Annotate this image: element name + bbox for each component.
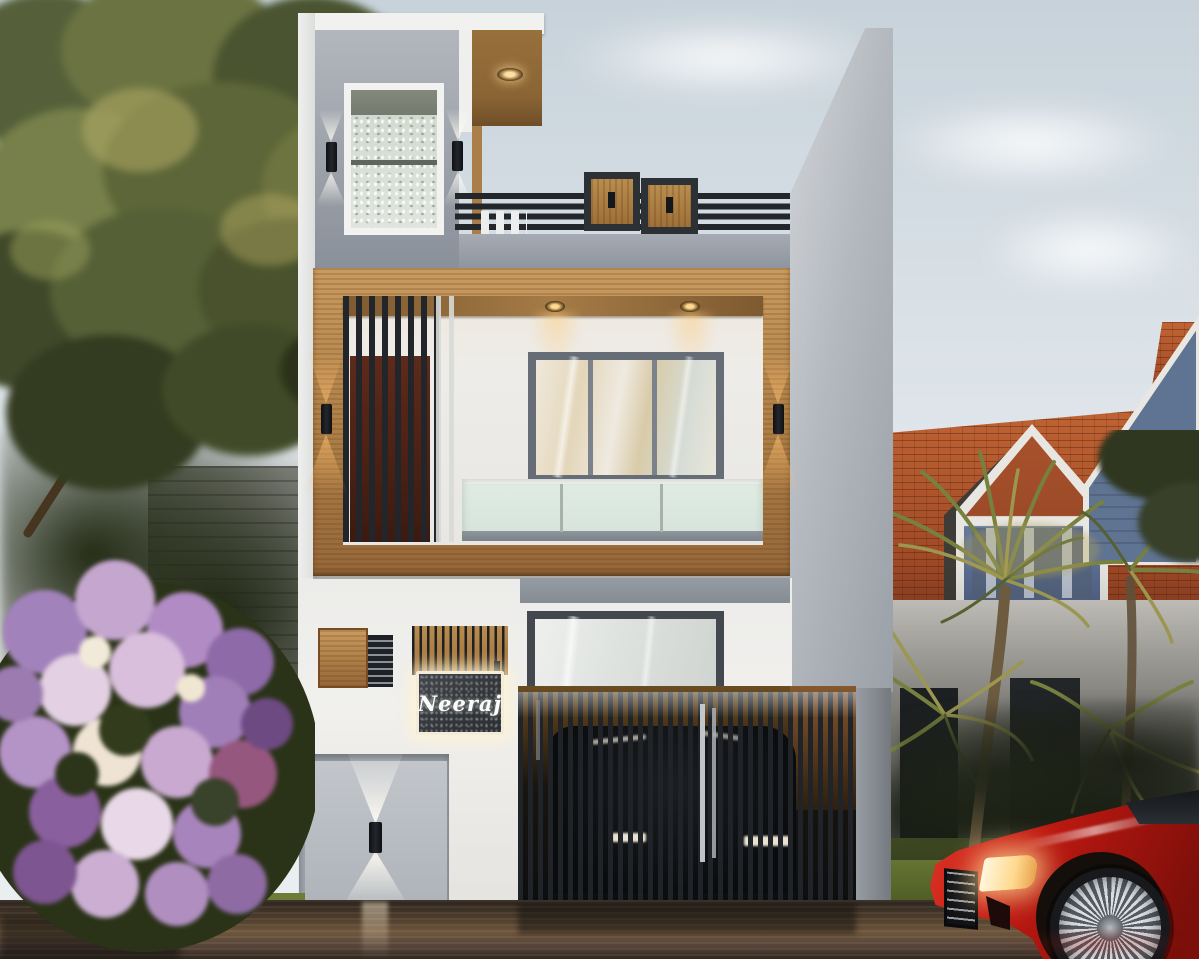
glass-divider	[560, 484, 563, 532]
recessed-downlight	[680, 301, 700, 312]
dark-foliage-top	[960, 430, 1199, 578]
cloud	[880, 100, 1180, 186]
louver-vent	[368, 635, 393, 687]
gate-road-reflection	[518, 904, 856, 934]
flower-bush	[0, 512, 315, 952]
window-mullion	[652, 360, 657, 475]
car-grille	[944, 868, 978, 930]
lamp-road-reflection	[362, 902, 388, 959]
rendered-scene: Neeraj	[0, 0, 1199, 959]
bright-gate-slat	[700, 704, 705, 862]
porch-slab-band	[520, 578, 790, 603]
driveway-gate	[518, 692, 856, 908]
cloud	[980, 210, 1199, 290]
bright-gate-slat	[536, 700, 540, 760]
recessed-downlight	[545, 301, 565, 312]
nameplate: Neeraj	[416, 671, 504, 735]
gate-top-highlight	[518, 692, 856, 718]
glass-divider	[660, 484, 663, 532]
boundary-pillar	[853, 688, 891, 912]
wall-sconce	[321, 404, 332, 434]
wall-sconce	[326, 142, 337, 172]
panel-knob	[666, 197, 673, 213]
vertical-slat-screen	[343, 296, 439, 542]
windshield	[1126, 790, 1199, 824]
bright-gate-slat	[712, 708, 716, 858]
wood-wall-panel	[318, 628, 368, 688]
wall-sconce	[773, 404, 784, 434]
garage-wall-lamp	[369, 822, 382, 853]
tower-window-mullion	[351, 160, 437, 165]
nameplate-text: Neeraj	[418, 691, 502, 716]
panel-knob	[608, 192, 615, 208]
tower-window-transom	[351, 90, 437, 115]
car-road-reflection	[1005, 928, 1195, 959]
wall-sconce	[452, 141, 463, 171]
parapet-wall	[459, 234, 790, 268]
window-mullion	[588, 360, 593, 475]
soffit-downlight	[497, 68, 523, 81]
light-slats	[436, 296, 462, 542]
balcony-glass-railing	[462, 479, 763, 541]
